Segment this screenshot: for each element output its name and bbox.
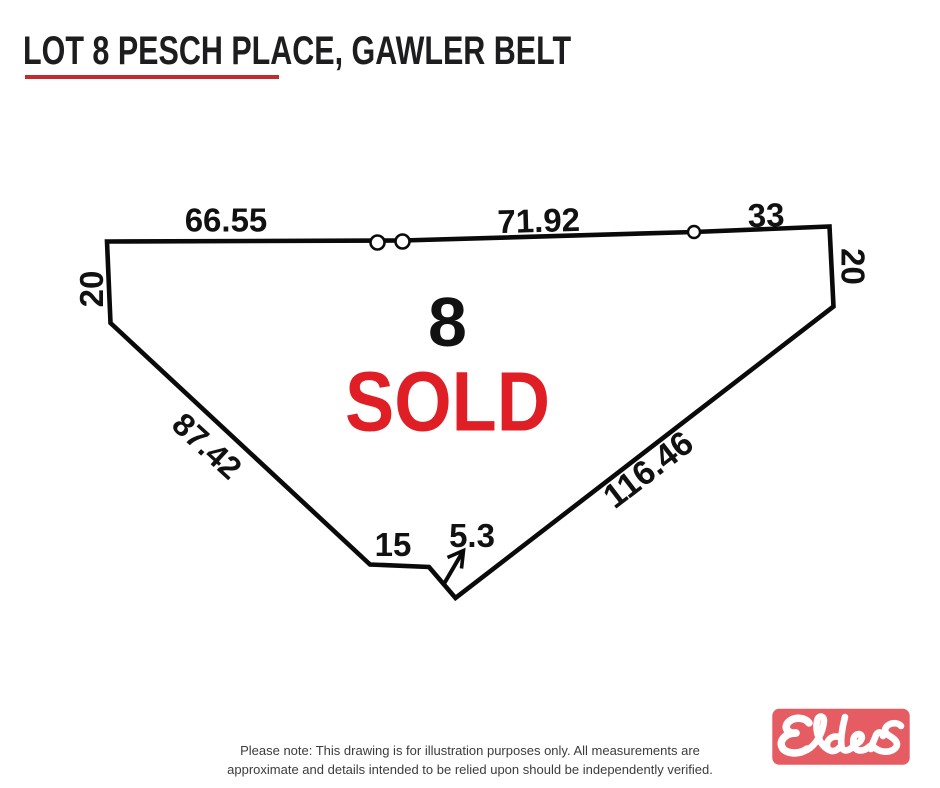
svg-text:71.92: 71.92: [497, 201, 581, 240]
svg-text:8: 8: [428, 283, 467, 361]
svg-text:66.55: 66.55: [185, 202, 268, 239]
svg-text:20: 20: [73, 271, 110, 308]
svg-text:SOLD: SOLD: [345, 355, 550, 449]
svg-text:87.42: 87.42: [165, 406, 248, 487]
svg-text:15: 15: [375, 526, 412, 563]
svg-text:5.3: 5.3: [449, 517, 495, 554]
svg-text:116.46: 116.46: [596, 424, 700, 516]
svg-text:33: 33: [747, 196, 785, 234]
svg-text:20: 20: [835, 248, 872, 285]
